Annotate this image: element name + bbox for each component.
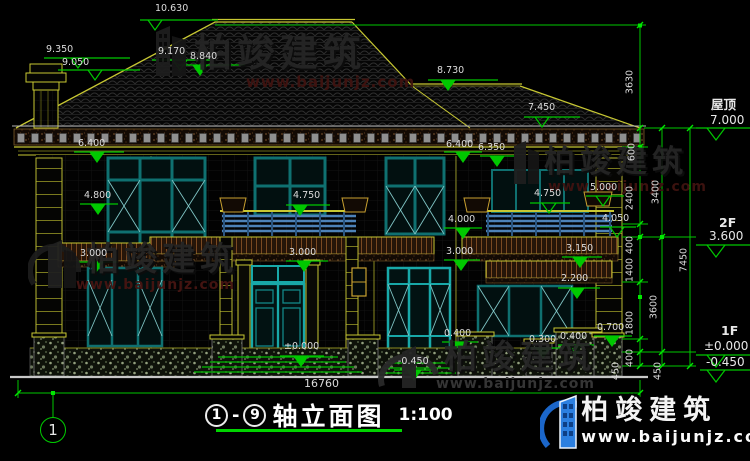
brand-logo-icon — [540, 388, 577, 454]
elevation-mark: 7.450 — [528, 103, 555, 113]
level-label-2f: 2F — [719, 217, 736, 230]
level-label-1f: 1F — [721, 325, 738, 338]
watermark-left: 柏竣建筑 www.baijunjz.com — [28, 232, 238, 293]
vdim: 600 — [627, 143, 637, 161]
elevation-mark: 9.050 — [62, 58, 89, 68]
vdim: 450 — [653, 362, 663, 380]
elevation-mark: 9.170 — [158, 47, 185, 57]
elevation-mark: 0.400 — [560, 332, 587, 342]
elevation-mark: 6.400 — [446, 140, 473, 150]
vdim: 3400 — [651, 180, 661, 204]
elevation-mark: 0.300 — [529, 335, 556, 345]
elevation-mark: 3.000 — [80, 249, 107, 259]
title-underline — [216, 429, 402, 432]
level-value-ground: -0.450 — [706, 356, 745, 368]
elevation-mark: 0.700 — [597, 323, 624, 333]
elevation-mark: 6.350 — [478, 143, 505, 153]
vdim: 2400 — [625, 186, 635, 210]
elevation-mark: 8.840 — [190, 52, 217, 62]
window-2f-right-center — [386, 158, 444, 234]
elevation-mark: 0.400 — [444, 329, 471, 339]
watermark-url: www.baijunjz.com — [76, 277, 238, 293]
elevation-mark: 3.000 — [446, 247, 473, 257]
elevation-mark: 10.630 — [155, 4, 188, 14]
elevation-mark: 5.000 — [590, 183, 617, 193]
watermark-url: www.baijunjz.com — [246, 73, 415, 91]
elevation-mark: 4.000 — [448, 215, 475, 225]
axis-bubble-1: 1 — [40, 417, 66, 443]
elevation-mark: 9.350 — [46, 45, 73, 55]
brand-logo-text: 柏竣建筑 — [581, 395, 717, 426]
vdim: 400 — [625, 349, 635, 367]
vdim: 400 — [625, 236, 635, 254]
watermark-brand: 柏竣建筑 — [86, 232, 238, 280]
window-2f-center — [255, 158, 325, 215]
elevation-mark: 4.800 — [84, 191, 111, 201]
axis-circle-end: 9 — [243, 404, 266, 427]
window-1f-narrow — [352, 268, 366, 296]
brand-logo: 柏竣建筑 www.baijunjz.com — [540, 388, 750, 454]
watermark-building-icon — [508, 136, 544, 186]
watermark-top: 柏竣建筑 www.baijunjz.com — [146, 22, 415, 91]
elevation-mark: -0.450 — [398, 357, 429, 367]
elevation-mark: 3.000 — [289, 248, 316, 258]
drawing-title: 1 - 9 轴立面图 1:100 — [205, 397, 453, 433]
vdim: 7450 — [679, 248, 689, 272]
vdim: 3630 — [625, 70, 635, 94]
vdim: 1800 — [625, 311, 635, 335]
elevation-mark: 6.400 — [78, 139, 105, 149]
elevation-mark: 2.200 — [561, 274, 588, 284]
elevation-mark: 4.050 — [602, 214, 629, 224]
watermark-brand: 柏竣建筑 — [194, 22, 415, 77]
elevation-mark: 3.150 — [566, 244, 593, 254]
axis-circle-start: 1 — [205, 404, 228, 427]
title-scale: 1:100 — [399, 405, 453, 425]
front-door — [236, 260, 320, 352]
elevation-mark: 8.730 — [437, 66, 464, 76]
axis-bubble-number: 1 — [48, 421, 58, 439]
vdim: 1400 — [625, 258, 635, 282]
elevation-mark: ±0.000 — [284, 342, 319, 352]
elevation-mark: 4.750 — [293, 191, 320, 201]
elevation-mark: 4.750 — [534, 189, 561, 199]
level-label-roof: 屋顶 — [711, 99, 736, 112]
level-value-2f: 3.600 — [709, 230, 743, 242]
cad-elevation-screenshot: 10.630 9.350 9.050 9.170 8.840 8.730 7.4… — [0, 0, 750, 461]
brand-logo-url: www.baijunjz.com — [581, 427, 750, 446]
vdim: 450 — [611, 362, 621, 380]
level-value-1f: ±0.000 — [704, 340, 748, 352]
vdim: 3600 — [649, 295, 659, 319]
level-value-roof: 7.000 — [710, 114, 744, 126]
title-text: 轴立面图 — [272, 397, 384, 433]
total-width-dim: 16760 — [304, 378, 339, 389]
title-dash: - — [232, 405, 239, 426]
